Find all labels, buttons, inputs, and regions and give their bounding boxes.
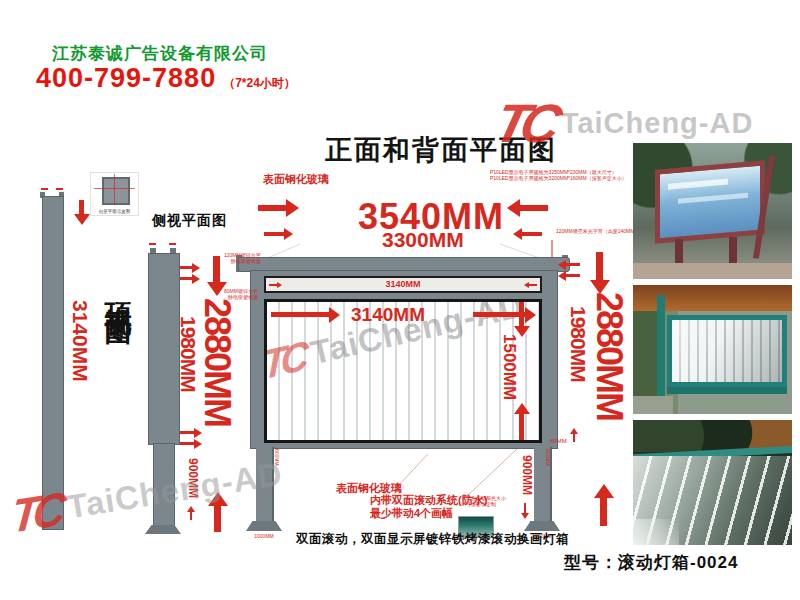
photo-street-lightbox: [633, 143, 792, 279]
note-min-posters: 最少带动4个画幅: [370, 506, 453, 521]
photo2-glass-reflection: [672, 320, 782, 382]
spec-sheet: 江苏泰诚广告设备有限公司 400-799-7880 （7*24小时） 正面和背面…: [0, 0, 800, 600]
dim-arrow: [178, 277, 192, 280]
note-lamp-band: 120MM镂空发光字带（高度140MM）: [556, 228, 639, 234]
dim-arrow: [214, 506, 221, 532]
dim-left-outer-height: 2880MM: [196, 298, 238, 426]
bottom-caption: 双面滚动，双面显示屏镀锌铁烤漆滚动换画灯箱: [296, 531, 569, 548]
photo1-lightbox-face: [655, 160, 765, 244]
side-view-label: 侧视平面图: [152, 212, 227, 230]
top-view-label: 顶视平面图: [100, 282, 136, 302]
dim-arrow: [524, 503, 526, 513]
photo3-reflection: [633, 519, 679, 545]
dim-arrow: [519, 302, 524, 326]
photo2-bottom-rail: [667, 387, 787, 394]
dim-right-leg-height: 900MM: [520, 455, 534, 495]
dim-window-height: 1500MM: [499, 334, 519, 400]
dim-top-view-width: 3140MM: [68, 300, 92, 382]
dim-inner-width: 3300MM: [382, 228, 464, 252]
dim-leg-tube-right: 600MM: [545, 449, 551, 466]
left-leg: [256, 447, 274, 521]
dim-arrow: [473, 312, 525, 317]
dim-arrow: [573, 434, 575, 442]
dim-arrow: [529, 284, 537, 286]
dim-arrow: [271, 312, 329, 317]
dim-arrow: [258, 205, 286, 211]
dim-arrow: [519, 414, 524, 440]
photo2-ground: [633, 396, 673, 414]
tick-mark: [149, 243, 156, 245]
photo-teal-lightbox: [633, 285, 792, 414]
dim-right-inner-height: 1980MM: [566, 306, 590, 382]
dim-arrow: [596, 252, 603, 280]
dim-arrow: [79, 200, 84, 214]
side-view-leg: [153, 443, 175, 527]
poster-window: TC TaiCheng-AD 3140MM 1500MM: [264, 299, 542, 443]
tick-mark: [56, 188, 63, 190]
photo-glass-closeup: [633, 420, 792, 545]
base-detail-square: [102, 177, 130, 205]
note-custom-2: 可按要求定制: [466, 501, 506, 507]
base-detail-box: 柱基平面示意图: [90, 172, 139, 216]
dim-base-width: 1000MM: [246, 533, 282, 539]
dim-80mm: 80MM: [550, 438, 567, 444]
note-led-spec-2: P10LED显示电子屏规格为3200MM*160MM（按客户定大小）: [490, 175, 627, 181]
tick-mark: [114, 174, 115, 205]
dim-arrow: [213, 256, 220, 282]
photo1-poster-highlight: [678, 193, 748, 204]
side-view-body: [148, 253, 180, 445]
dim-arrow: [190, 512, 192, 520]
dim-arrow: [566, 263, 580, 266]
photo1-ground: [633, 263, 792, 279]
dim-arrow: [566, 274, 580, 277]
dim-arrow: [264, 232, 284, 236]
base-detail-caption: 柱基平面示意图: [91, 209, 138, 214]
dim-right-outer-height: 2880MM: [588, 292, 630, 420]
dim-arrow: [269, 284, 277, 286]
tick-mark: [41, 188, 48, 190]
dim-left-leg-height: 900MM: [186, 458, 200, 498]
dim-arrow: [522, 232, 542, 236]
dim-arrow: [520, 205, 548, 211]
dim-leg-tube-left: 600MM: [274, 449, 280, 466]
top-view-bar: [42, 196, 64, 530]
model-label: 型号：滚动灯箱-0024: [564, 551, 738, 574]
tick-mark: [169, 243, 176, 245]
dim-arrow: [178, 266, 192, 269]
note-tempered-glass-top: 表面钢化玻璃: [263, 172, 329, 187]
dim-strip-width: 3140MM: [266, 279, 540, 289]
photo2-lightbox-face: [667, 315, 787, 387]
dim-arrow: [600, 498, 607, 526]
note-frame-profile-1b: 静电喷塑烤漆: [224, 258, 261, 264]
photo1-poster-highlight: [668, 178, 728, 189]
led-strip: 3140MM: [264, 276, 542, 293]
